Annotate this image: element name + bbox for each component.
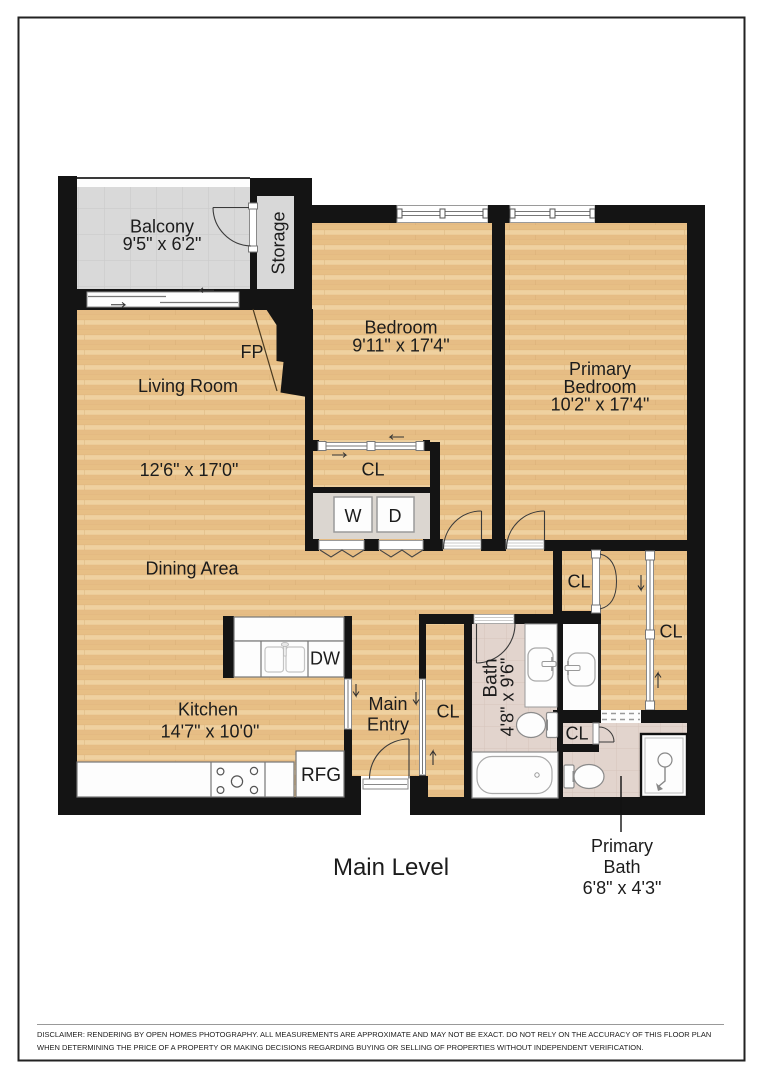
svg-text:Primary: Primary: [569, 359, 631, 379]
svg-text:Bedroom: Bedroom: [364, 318, 437, 338]
svg-text:CL: CL: [567, 572, 590, 592]
svg-text:4'8" x 9'6": 4'8" x 9'6": [498, 658, 518, 737]
svg-text:W: W: [345, 506, 362, 526]
svg-text:Main: Main: [368, 694, 407, 714]
svg-text:Entry: Entry: [367, 715, 409, 735]
svg-text:D: D: [389, 506, 402, 526]
svg-text:Bath: Bath: [603, 857, 640, 877]
svg-text:CL: CL: [565, 724, 588, 744]
svg-text:Primary: Primary: [591, 836, 653, 856]
svg-text:Main Level: Main Level: [333, 854, 449, 881]
svg-text:CL: CL: [436, 702, 459, 722]
svg-text:CL: CL: [659, 622, 682, 642]
svg-text:Kitchen: Kitchen: [178, 700, 238, 720]
svg-text:DW: DW: [310, 649, 340, 669]
svg-text:9'5" x 6'2": 9'5" x 6'2": [123, 234, 202, 254]
svg-text:WHEN DETERMINING THE PRICE OF: WHEN DETERMINING THE PRICE OF A PROPERTY…: [37, 1043, 644, 1052]
svg-text:9'11" x 17'4": 9'11" x 17'4": [352, 336, 449, 356]
svg-text:Dining Area: Dining Area: [145, 559, 239, 579]
svg-text:RFG: RFG: [301, 765, 341, 786]
svg-text:Living Room: Living Room: [138, 376, 238, 396]
svg-text:Storage: Storage: [269, 211, 289, 274]
svg-text:10'2" x 17'4": 10'2" x 17'4": [551, 395, 650, 415]
svg-text:DISCLAIMER: RENDERING BY OPEN: DISCLAIMER: RENDERING BY OPEN HOMES PHOT…: [37, 1030, 711, 1039]
svg-text:FP: FP: [240, 342, 263, 362]
svg-text:CL: CL: [361, 460, 384, 480]
svg-text:6'8" x 4'3": 6'8" x 4'3": [583, 878, 662, 898]
svg-text:12'6" x 17'0": 12'6" x 17'0": [140, 460, 239, 480]
svg-text:14'7" x 10'0": 14'7" x 10'0": [161, 722, 260, 742]
